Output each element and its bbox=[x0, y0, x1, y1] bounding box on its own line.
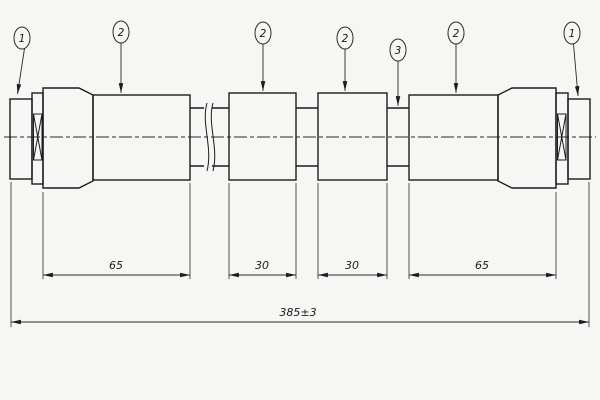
left-end-cap bbox=[10, 99, 32, 179]
balloon-label: 2 bbox=[260, 28, 267, 40]
dimension-value: 65 bbox=[109, 259, 123, 272]
balloon-label: 2 bbox=[342, 33, 349, 45]
balloon-label: 3 bbox=[395, 45, 402, 57]
left-ferrule bbox=[43, 88, 93, 188]
dimension-mid-right: 30 bbox=[318, 183, 387, 279]
balloon-callout-2-right-sleeve: 2 bbox=[448, 22, 464, 93]
balloon-label: 2 bbox=[453, 28, 460, 40]
balloon-label: 2 bbox=[118, 27, 125, 39]
balloon-callout-3-hose: 3 bbox=[390, 39, 406, 106]
technical-drawing-canvas: 1 2 2 2 3 2 1 65 30 bbox=[0, 0, 600, 400]
dimension-value: 30 bbox=[255, 259, 269, 272]
dimension-overall-length: 385±3 bbox=[11, 182, 589, 327]
dimension-right-sleeve: 65 bbox=[409, 183, 556, 279]
right-ferrule bbox=[498, 88, 556, 188]
balloon-label: 1 bbox=[569, 28, 576, 40]
dimension-left-sleeve: 65 bbox=[43, 183, 190, 279]
balloon-callout-2-mid-left: 2 bbox=[255, 22, 271, 91]
dimension-value: 30 bbox=[345, 259, 359, 272]
hose-assembly-drawing: 1 2 2 2 3 2 1 65 30 bbox=[0, 0, 600, 400]
hose-assembly-outline bbox=[10, 88, 590, 188]
balloon-label: 1 bbox=[19, 33, 26, 45]
dimension-value: 65 bbox=[475, 259, 489, 272]
balloon-callout-1-left: 1 bbox=[14, 27, 30, 94]
balloon-callout-2-left-sleeve: 2 bbox=[113, 21, 129, 93]
dimension-value: 385±3 bbox=[279, 306, 316, 319]
balloon-callout-2-mid-right: 2 bbox=[337, 27, 353, 91]
dimension-mid-left: 30 bbox=[229, 183, 296, 279]
right-end-cap bbox=[568, 99, 590, 179]
balloon-callout-1-right: 1 bbox=[564, 22, 580, 96]
